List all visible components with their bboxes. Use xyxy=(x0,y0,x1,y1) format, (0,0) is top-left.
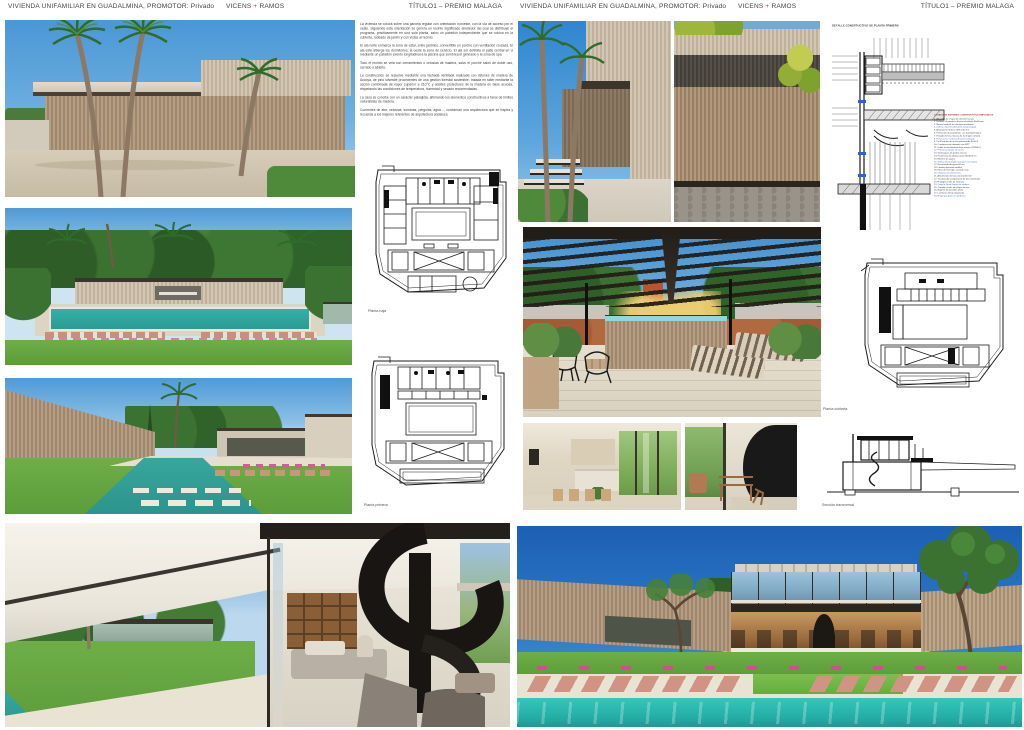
memoria-text: La vivienda se coloca sobre una parcela … xyxy=(360,22,513,160)
poster-canvas: VIVIENDA UNIFAMILIAR EN GUADALMINA, PROM… xyxy=(0,0,1024,730)
stools xyxy=(553,489,613,501)
house-volume-far-right xyxy=(305,414,352,464)
foliage-top-left xyxy=(674,21,744,35)
glass-mullion xyxy=(267,537,270,727)
flank-tree-left xyxy=(5,268,51,338)
pergola-roof xyxy=(735,564,917,572)
loungers-left-row xyxy=(527,676,746,692)
firm-name: VICENS + RAMOS xyxy=(226,3,284,10)
pavilion-bench xyxy=(159,292,197,295)
caption-planta-primera: Planta primera xyxy=(364,503,436,515)
glass-pavilion-corner xyxy=(323,302,352,324)
balcony-rail xyxy=(731,600,921,603)
small-tree-icon xyxy=(637,574,727,654)
panel-right: VIVIENDA UNIFAMILIAR EN GUADALMINA, PROM… xyxy=(512,0,1024,520)
photo-porch-spiral-stair xyxy=(5,523,510,727)
glass-band-right xyxy=(227,438,305,456)
photo-linear-pool xyxy=(5,378,352,514)
palm-canopies-icon xyxy=(5,222,352,282)
stepping-stones-2 xyxy=(141,500,251,506)
glass-reflection xyxy=(643,433,649,493)
memoria-paragraph: El ala norte enmarca la zona de estar, e… xyxy=(360,44,513,57)
drawing-planta-primera xyxy=(364,353,514,501)
front-lawn xyxy=(5,340,352,365)
bougainvillea-border xyxy=(537,666,1007,670)
pergola-post-right xyxy=(729,279,732,345)
planting-left xyxy=(523,323,583,357)
legend-items: 1. Albardilla de chapa de aluminio lacad… xyxy=(934,118,1022,198)
planting-right xyxy=(761,319,821,359)
detail-legend: LISTADO DE SISTEMAS CONSTRUCTIVOS EMPLEA… xyxy=(934,114,1024,232)
photo-facade-slats-detail xyxy=(674,21,820,222)
wood-stool xyxy=(523,357,559,409)
drawing-seccion-transversal xyxy=(823,428,1024,500)
window-mullion-1 xyxy=(635,431,637,495)
detail-block: DETALLE CONSTRUCTIVO DE PLANTA PRIMERA xyxy=(830,24,1024,236)
hood-volume xyxy=(571,439,615,465)
photo-rear-elevation-pool xyxy=(517,526,1022,727)
firm-plus-icon: + xyxy=(765,3,769,10)
memoria-paragraph: Todo el recinto se vela con cerramientos… xyxy=(360,61,513,70)
bougainvillea xyxy=(243,464,325,468)
memoria-paragraph: La construcción se resuelve mediante una… xyxy=(360,73,513,91)
main-pool-water xyxy=(49,307,311,331)
palm-trees-icon xyxy=(5,20,355,197)
award-title: TÍTULO1 – PREMIO MALAGA xyxy=(409,3,502,10)
photo-exterior-entrance-drive xyxy=(5,20,355,197)
photo-kitchen-interior xyxy=(523,423,681,510)
firm-b: RAMOS xyxy=(771,3,796,10)
drawing-planta-baja xyxy=(368,162,514,308)
cobblestone-paving xyxy=(674,187,820,222)
foliage-right xyxy=(770,41,820,97)
bench-chairs-icon xyxy=(715,467,765,507)
caption-planta-baja: Planta baja xyxy=(368,309,423,321)
caption-seccion-transversal: Sección transversal xyxy=(822,503,918,515)
planter-outside xyxy=(689,473,707,493)
legend-title: LISTADO DE SISTEMAS CONSTRUCTIVOS EMPLEA… xyxy=(934,114,1022,117)
pool-ripples xyxy=(517,702,1022,724)
drawing-detalle-constructivo xyxy=(830,34,946,234)
photo-entrance-steps xyxy=(518,21,671,222)
project-title: VIVIENDA UNIFAMILIAR EN GUADALMINA, PROM… xyxy=(520,3,726,10)
loungers xyxy=(215,470,335,476)
memoria-paragraph: La vivienda se coloca sobre una parcela … xyxy=(360,22,513,40)
entrance-palms-icon xyxy=(518,21,671,222)
photo-garden-main-pool xyxy=(5,208,352,365)
detail-title: DETALLE CONSTRUCTIVO DE PLANTA PRIMERA xyxy=(832,24,1024,34)
drawing-planta-cubierta xyxy=(853,253,1015,401)
oven xyxy=(529,449,539,465)
firm-b: RAMOS xyxy=(259,3,284,10)
window-mullion-2 xyxy=(657,431,659,495)
spiral-stair xyxy=(305,523,510,727)
panel-left: VIVIENDA UNIFAMILIAR EN GUADALMINA, PROM… xyxy=(0,0,512,520)
stepping-stones-1 xyxy=(133,488,241,493)
award-title: TÍTULO1 – PREMIO MALAGA xyxy=(921,3,1014,10)
loungers-right-row xyxy=(809,676,1018,692)
lawn xyxy=(517,652,1022,676)
project-title: VIVIENDA UNIFAMILIAR EN GUADALMINA, PROM… xyxy=(8,3,214,10)
photo-interior-curved-wall xyxy=(685,423,797,510)
memoria-paragraph: La casa se concibe con un carácter paisa… xyxy=(360,95,513,104)
large-tree-icon xyxy=(913,526,1022,661)
main-timber-wall xyxy=(674,87,820,183)
photo-roof-terrace-pergola xyxy=(523,227,821,417)
memoria-paragraph: Corrientes de aire, celosías, sombras, p… xyxy=(360,108,513,117)
firm-plus-icon: + xyxy=(253,3,257,10)
firm-a: VICENS xyxy=(738,3,763,10)
caption-planta-cubierta: Planta cubierta xyxy=(823,407,896,419)
firm-a: VICENS xyxy=(226,3,251,10)
firm-name: VICENS + RAMOS xyxy=(738,3,796,10)
legend-item: 28. Riego por goteo en jardinera xyxy=(934,195,1022,198)
glass-reflection xyxy=(273,543,283,727)
dark-fascia xyxy=(723,604,929,612)
